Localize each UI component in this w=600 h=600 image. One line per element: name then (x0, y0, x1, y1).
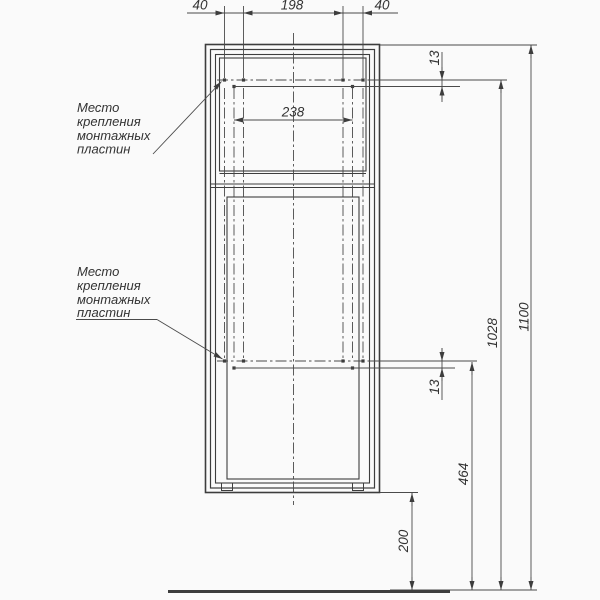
dim-floor-clearance: 200 (396, 529, 411, 553)
lower-mounting-note: Место крепления монтажных пластин (77, 264, 151, 320)
upper-mounting-note: Место крепления монтажных пластин (77, 100, 151, 157)
dim-plate-span: 238 (281, 105, 305, 120)
dimension-lines (187, 6, 537, 590)
left-foot (222, 483, 233, 491)
dim-top-right: 40 (374, 0, 390, 13)
upper-note-line-4: пластин (77, 142, 130, 157)
lower-note-line-1: Место (77, 264, 119, 279)
dim-upper-plate-height: 1028 (485, 317, 500, 348)
right-foot (353, 483, 364, 491)
lower-door-panel (227, 197, 359, 479)
dimension-labels: 40 198 40 238 13 13 200 464 1028 1100 (192, 0, 531, 553)
dim-top-center: 198 (281, 0, 304, 13)
dim-upper-row-offset: 13 (427, 50, 442, 66)
dim-top-left: 40 (192, 0, 208, 13)
dim-lower-plate-height: 464 (456, 463, 471, 486)
lower-note-line-4: пластин (77, 305, 130, 320)
drawing-canvas: 40 198 40 238 13 13 200 464 1028 1100 Ме… (0, 0, 600, 600)
upper-note-line-1: Место (77, 100, 119, 115)
dim-overall-height: 1100 (517, 302, 532, 332)
lower-note-line-2: крепления (77, 278, 141, 293)
upper-note-line-2: крепления (77, 114, 141, 129)
dim-lower-row-offset: 13 (427, 379, 442, 395)
upper-note-leader (153, 82, 222, 155)
lower-note-leader (157, 320, 223, 360)
technical-drawing: 40 198 40 238 13 13 200 464 1028 1100 Ме… (0, 0, 600, 600)
